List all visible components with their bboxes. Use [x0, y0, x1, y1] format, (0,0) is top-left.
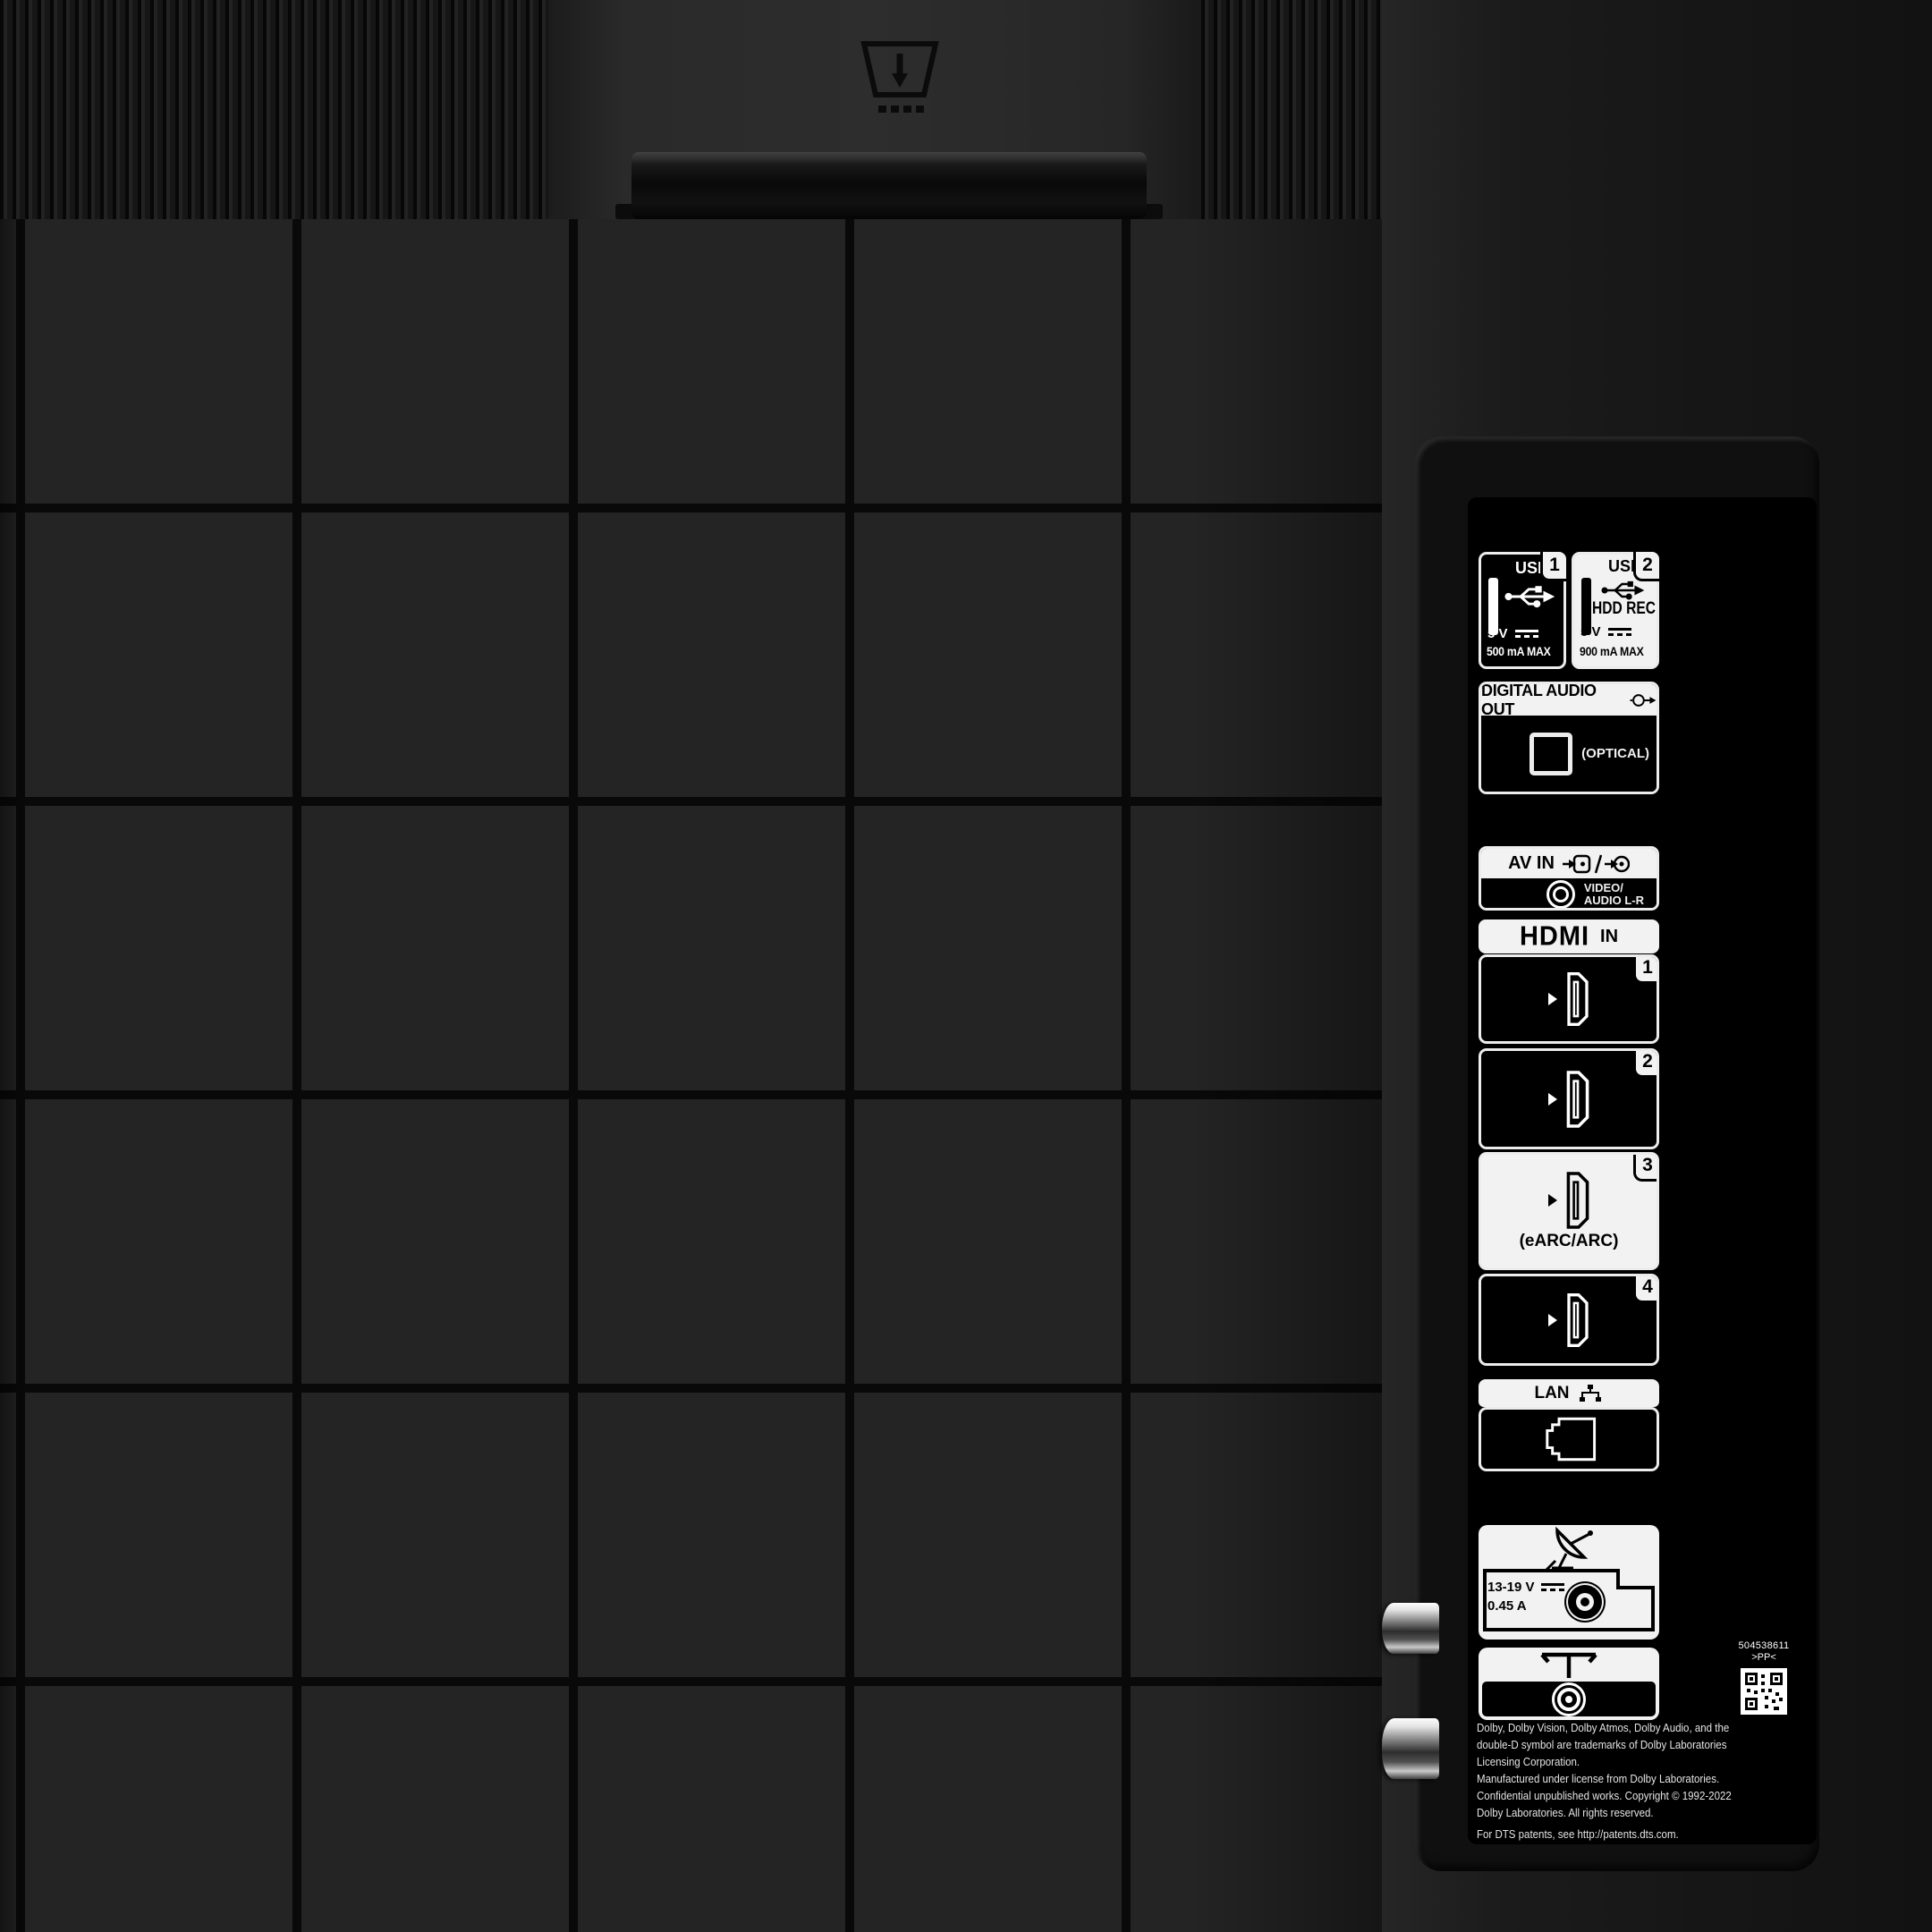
hdmi-connector-icon [1564, 972, 1591, 1026]
dc-symbol [1608, 628, 1631, 636]
hdmi-2-number-tag: 2 [1633, 1048, 1659, 1078]
usb-2-hdd-rec-label: HDD REC [1592, 599, 1649, 619]
heat-vent-ridges-right [1201, 0, 1382, 219]
legal-line: Dolby Laboratories. All rights reserved. [1477, 1804, 1756, 1821]
satellite-spec-region: 13-19 V 0.45 A [1482, 1568, 1656, 1632]
antenna-coax-connector[interactable] [1382, 1718, 1439, 1779]
usb-1-voltage: 5 V [1487, 626, 1508, 641]
av-in-section: AV IN VID [1479, 846, 1659, 911]
hdmi-port-3-earc[interactable]: 3 (eARC/ARC) [1479, 1152, 1659, 1270]
lan-label: LAN [1534, 1384, 1569, 1403]
digital-audio-out-label: DIGITAL AUDIO OUT [1481, 682, 1622, 719]
satellite-jack-icon[interactable] [1568, 1585, 1602, 1619]
legal-line: Confidential unpublished works. Copyrigh… [1477, 1787, 1756, 1804]
optical-label: (OPTICAL) [1581, 746, 1649, 761]
dc-symbol [1541, 1583, 1564, 1591]
hdmi-connector-icon [1564, 1293, 1591, 1347]
arrow-right-icon [1547, 992, 1558, 1006]
antenna-icon [1535, 1650, 1603, 1679]
stand-mount-panel [548, 0, 1201, 219]
usb-ports-section: 1 USB 5 V 500 mA MAX [1479, 552, 1659, 669]
arrow-right-icon [1547, 1313, 1558, 1327]
qr-code [1741, 1668, 1787, 1715]
tv-top-edge [0, 0, 1382, 219]
connector-bay: 1 USB 5 V 500 mA MAX [1415, 436, 1819, 1871]
legal-line: Dolby, Dolby Vision, Dolby Atmos, Dolby … [1477, 1719, 1756, 1736]
legal-text: Dolby, Dolby Vision, Dolby Atmos, Dolby … [1477, 1719, 1756, 1843]
rca-jack-icon[interactable] [1546, 880, 1575, 909]
optical-port[interactable] [1529, 733, 1572, 775]
arrow-right-icon [1547, 1092, 1558, 1106]
heat-vent-ridges-left [0, 0, 548, 219]
antenna-in-section [1479, 1648, 1659, 1720]
checkered-back-texture [0, 219, 1382, 1932]
satellite-in-section: 13-19 V 0.45 A [1479, 1525, 1659, 1640]
hdmi-port-2[interactable]: 2 [1479, 1048, 1659, 1149]
stand-insert-icon [857, 39, 943, 122]
port-label-panel: 1 USB 5 V 500 mA MAX [1468, 497, 1817, 1844]
hdmi-3-number-tag: 3 [1633, 1152, 1659, 1182]
hdmi-4-number-tag: 4 [1633, 1274, 1659, 1303]
av-in-jack-icons [1562, 852, 1630, 876]
lan-network-icon [1577, 1384, 1604, 1403]
satellite-dish-icon [1539, 1527, 1598, 1570]
hdmi-connector-icon [1564, 1071, 1591, 1128]
stand-mount-bar [631, 152, 1147, 219]
av-in-line1: VIDEO/ [1584, 882, 1644, 894]
usb-1-current: 500 mA MAX [1487, 644, 1551, 658]
usb-2-number-tag: 2 [1633, 552, 1659, 581]
arrow-right-icon [1547, 1193, 1558, 1207]
antenna-coax-jack-icon[interactable] [1552, 1682, 1586, 1716]
lan-port[interactable] [1479, 1407, 1659, 1471]
hdmi-port-1[interactable]: 1 [1479, 954, 1659, 1044]
usb-1-number-tag: 1 [1540, 552, 1566, 581]
lan-header: LAN [1479, 1379, 1659, 1407]
dc-symbol [1515, 630, 1538, 638]
av-in-line2: AUDIO L-R [1584, 894, 1644, 907]
hdmi-in-suffix: IN [1600, 927, 1618, 947]
hdmi-logo: HDMI [1520, 921, 1589, 953]
legal-line: Licensing Corporation. [1477, 1753, 1756, 1770]
hdmi-port-4[interactable]: 4 [1479, 1274, 1659, 1366]
serial-code: >PP< [1729, 1652, 1799, 1663]
earc-arc-label: (eARC/ARC) [1520, 1232, 1619, 1251]
usb-2-voltage: 5 V [1580, 624, 1601, 640]
hdmi-1-number-tag: 1 [1633, 954, 1659, 984]
hdmi-in-header: HDMI IN [1479, 919, 1659, 953]
serial-block: 504538611 >PP< [1729, 1640, 1799, 1715]
usb-port-1: 1 USB 5 V 500 mA MAX [1479, 552, 1566, 669]
tv-back-photo: 1 USB 5 V 500 mA MAX [0, 0, 1932, 1932]
dts-patents-line: For DTS patents, see http://patents.dts.… [1477, 1826, 1756, 1843]
audio-out-icon [1629, 691, 1657, 710]
legal-line: double-D symbol are trademarks of Dolby … [1477, 1736, 1756, 1753]
rj45-port-icon [1539, 1415, 1598, 1463]
satellite-coax-connector[interactable] [1382, 1603, 1439, 1654]
satellite-voltage: 13-19 V [1487, 1580, 1535, 1595]
satellite-current: 0.45 A [1487, 1598, 1527, 1614]
serial-number: 504538611 [1729, 1640, 1799, 1651]
usb-trident-icon [1504, 581, 1556, 612]
hdmi-connector-icon [1564, 1171, 1591, 1230]
digital-audio-out-section: DIGITAL AUDIO OUT (OPTICAL) [1479, 682, 1659, 794]
av-in-label: AV IN [1508, 853, 1555, 874]
usb-2-current: 900 mA MAX [1580, 644, 1644, 658]
usb-port-2: 2 USB HDD REC 5 V 900 mA [1572, 552, 1659, 669]
legal-line: Manufactured under license from Dolby La… [1477, 1770, 1756, 1787]
